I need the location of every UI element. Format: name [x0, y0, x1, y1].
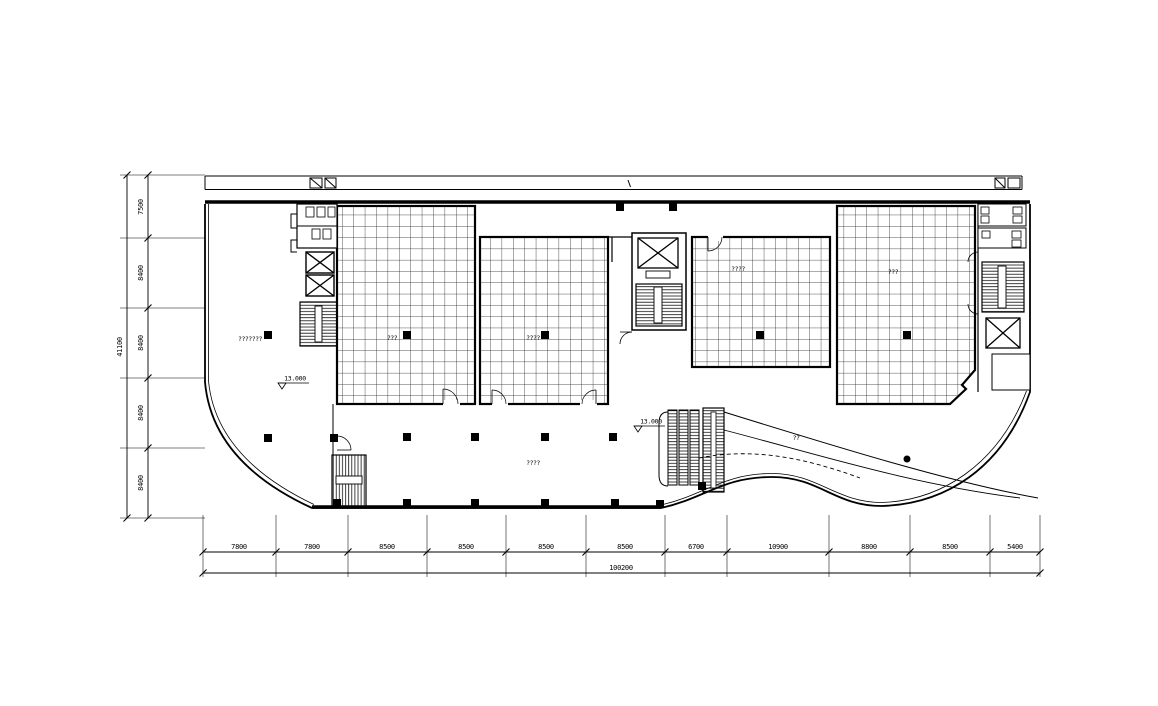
dim-label: 8400	[137, 265, 145, 281]
dim-label: 8400	[137, 335, 145, 351]
bottom-dimensions: 7800 7800 8500 8500 8500 8500 6700 10900…	[200, 515, 1044, 577]
atrium-curve	[724, 430, 1020, 498]
room-label-lobby: ????	[526, 459, 540, 467]
level-label: 13.000	[284, 375, 306, 383]
room-label-left-hall: ???????	[238, 335, 262, 343]
staircase-icon	[636, 284, 682, 326]
retail-area-a	[337, 206, 475, 404]
dim-label: 8500	[617, 543, 633, 551]
left-dimensions: 7500 8400 8400 8400 8400 41100	[116, 172, 205, 522]
middle-core	[620, 233, 686, 344]
staircase-icon	[703, 408, 724, 492]
dim-label: 6700	[688, 543, 704, 551]
retail-area-b	[480, 237, 608, 404]
level-label: 13.000	[640, 418, 662, 426]
left-core	[291, 204, 337, 346]
round-column-icon	[904, 456, 911, 463]
dim-label: 5400	[1007, 543, 1023, 551]
dim-label: 8800	[861, 543, 877, 551]
level-triangle-icon	[634, 426, 642, 432]
escalator-bank	[659, 408, 1038, 498]
dim-label: 8400	[137, 475, 145, 491]
room-label-area-d: ???	[888, 268, 899, 276]
dim-label: 7800	[231, 543, 247, 551]
dim-total-label: 41100	[116, 337, 124, 357]
dim-label: 8500	[379, 543, 395, 551]
dim-total-label: 100200	[609, 564, 633, 572]
floor-plan-svg: 7800 7800 8500 8500 8500 8500 6700 10900…	[0, 0, 1158, 706]
north-tick-icon	[628, 180, 631, 187]
retail-area-d	[837, 206, 975, 404]
level-triangle-icon	[278, 383, 286, 389]
dim-label: 8400	[137, 405, 145, 421]
escalator-icon	[668, 410, 699, 485]
dim-label: 8500	[538, 543, 554, 551]
bottom-left-staircase	[332, 404, 366, 507]
dim-label: 10900	[768, 543, 788, 551]
room-label-escalator: ??	[793, 434, 800, 442]
dim-label: 8500	[942, 543, 958, 551]
canopy-roof-edge	[205, 176, 1022, 190]
dim-label: 7800	[304, 543, 320, 551]
room-label-area-c: ????	[731, 265, 745, 273]
elevator-shaft-icon	[986, 318, 1020, 348]
staircase-icon	[982, 262, 1024, 312]
room-label-area-a: ???	[387, 334, 398, 342]
dim-label: 8500	[458, 543, 474, 551]
staircase-icon	[300, 302, 337, 346]
elevator-shaft-icon	[306, 252, 334, 296]
retail-area-c	[692, 237, 830, 367]
drawing-page: 7800 7800 8500 8500 8500 8500 6700 10900…	[0, 0, 1158, 706]
dim-label: 7500	[137, 199, 145, 215]
room-label-area-b: ????	[526, 334, 540, 342]
